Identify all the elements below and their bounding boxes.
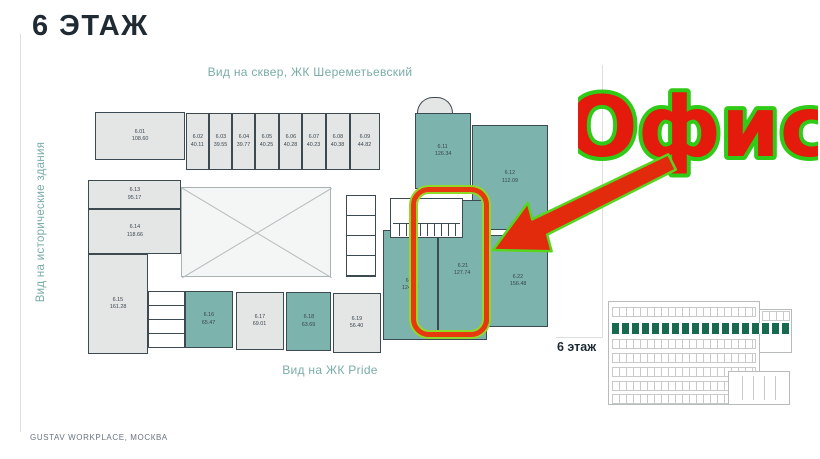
elevation-window-row bbox=[612, 307, 756, 317]
room-area: 65.47 bbox=[202, 320, 216, 326]
stair-tower bbox=[417, 97, 453, 113]
page-title: 6 ЭТАЖ bbox=[32, 10, 149, 43]
room-area: 108.60 bbox=[132, 136, 149, 142]
view-label-left: Вид на исторические здания bbox=[35, 142, 47, 303]
room-area: 156.48 bbox=[510, 281, 527, 287]
room-6-22: 6.22 156.48 bbox=[488, 235, 548, 327]
room-6-04: 6.04 39.77 bbox=[232, 113, 255, 170]
room-6-09: 6.09 44.82 bbox=[350, 113, 380, 170]
slide: 6 ЭТАЖ Вид на сквер, ЖК Шереметьевский В… bbox=[0, 0, 820, 459]
elevation-lower-block bbox=[728, 371, 790, 405]
room-area: 56.40 bbox=[350, 323, 364, 329]
room-area: 112.09 bbox=[502, 178, 518, 184]
office-highlight-outline bbox=[411, 187, 489, 337]
room-number: 6.09 bbox=[360, 135, 371, 141]
room-area: 126.34 bbox=[435, 151, 452, 157]
room-area: 40.11 bbox=[191, 142, 204, 148]
room-6-05: 6.05 40.25 bbox=[255, 113, 279, 170]
room-number: 6.03 bbox=[215, 135, 226, 141]
room-area: 40.38 bbox=[331, 142, 345, 148]
room-area: 161.28 bbox=[110, 304, 127, 310]
elevator-core bbox=[346, 195, 376, 277]
room-6-14: 6.14 118.66 bbox=[88, 209, 181, 254]
room-6-03: 6.03 39.55 bbox=[209, 113, 232, 170]
floor-tag: 6 этаж bbox=[557, 340, 596, 354]
room-area: 40.28 bbox=[284, 142, 298, 148]
left-border-line bbox=[20, 34, 21, 432]
room-6-17: 6.17 69.01 bbox=[236, 292, 284, 350]
room-6-15: 6.15 161.28 bbox=[88, 254, 148, 354]
room-number: 6.01 bbox=[135, 129, 146, 135]
room-number: 6.12 bbox=[505, 171, 516, 177]
elevation-floor-row-highlight bbox=[612, 323, 790, 334]
room-number: 6.14 bbox=[129, 225, 140, 231]
room-6-06: 6.06 40.28 bbox=[279, 113, 302, 170]
room-6-19: 6.19 56.40 bbox=[333, 293, 381, 353]
stair-core bbox=[148, 291, 185, 348]
room-number: 6.16 bbox=[204, 313, 215, 319]
office-annotation: Офис bbox=[578, 62, 818, 184]
elevation-lower-windows bbox=[732, 376, 786, 400]
room-6-07: 6.07 40.23 bbox=[302, 113, 326, 170]
room-number: 6.05 bbox=[262, 135, 273, 141]
room-number: 6.13 bbox=[129, 188, 140, 194]
room-number: 6.08 bbox=[333, 135, 344, 141]
room-number: 6.02 bbox=[192, 135, 203, 141]
room-6-11: 6.11 126.34 bbox=[415, 113, 471, 189]
elevation-window-row bbox=[612, 339, 756, 349]
room-number: 6.22 bbox=[513, 274, 524, 280]
room-number: 6.06 bbox=[285, 135, 296, 141]
view-label-top: Вид на сквер, ЖК Шереметьевский bbox=[170, 65, 450, 79]
room-area: 118.66 bbox=[126, 232, 142, 238]
office-annotation-text: Офис bbox=[578, 78, 818, 176]
room-area: 39.77 bbox=[237, 142, 251, 148]
elevation-window-row bbox=[612, 353, 756, 363]
room-6-13: 6.13 95.17 bbox=[88, 180, 181, 209]
room-area: 40.23 bbox=[307, 142, 321, 148]
room-number: 6.18 bbox=[303, 315, 314, 321]
room-area: 95.17 bbox=[128, 195, 142, 201]
room-area: 39.55 bbox=[214, 142, 228, 148]
floor-plan: 6.01 108.60 6.02 40.11 6.03 39.55 6.04 3… bbox=[75, 95, 567, 367]
elevation-window-row bbox=[762, 311, 790, 321]
footer-caption: GUSTAV WORKPLACE, МОСКВА bbox=[30, 433, 168, 442]
room-area: 63.69 bbox=[302, 322, 316, 328]
room-6-18: 6.18 63.69 bbox=[286, 292, 331, 351]
building-elevation bbox=[600, 283, 800, 423]
atrium-void bbox=[181, 187, 331, 277]
room-6-01: 6.01 108.60 bbox=[95, 112, 185, 160]
atrium-cross-lines bbox=[182, 188, 332, 278]
room-area: 69.01 bbox=[253, 321, 267, 327]
room-number: 6.15 bbox=[113, 297, 124, 303]
room-number: 6.11 bbox=[438, 144, 448, 150]
room-6-16: 6.16 65.47 bbox=[185, 291, 233, 348]
room-area: 40.25 bbox=[260, 142, 274, 148]
room-number: 6.04 bbox=[238, 135, 249, 141]
room-number: 6.19 bbox=[352, 316, 363, 322]
room-number: 6.17 bbox=[255, 314, 266, 320]
room-number: 6.07 bbox=[309, 135, 320, 141]
room-area: 44.82 bbox=[358, 142, 372, 148]
room-6-02: 6.02 40.11 bbox=[186, 113, 209, 170]
room-6-08: 6.08 40.38 bbox=[326, 113, 350, 170]
